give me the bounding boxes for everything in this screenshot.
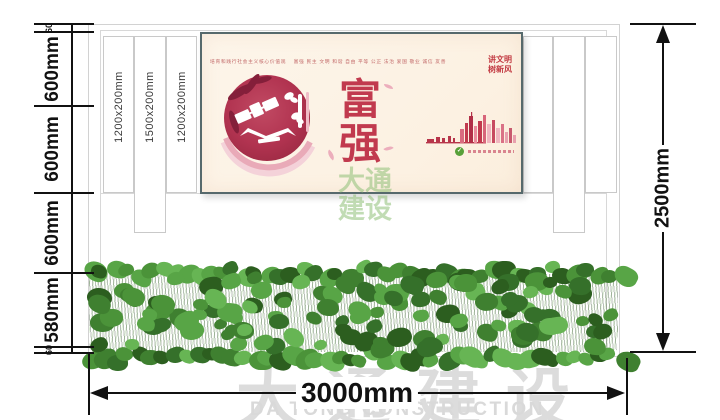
pillar-left-1-label: 1200x200mm (113, 71, 125, 143)
dim-right-line-lower (662, 232, 664, 348)
poster-slogan-line1: 讲文明 (488, 55, 512, 65)
dim-label-top-60: 60 (44, 23, 54, 33)
petal-decoration (383, 144, 393, 153)
pillar-left-2-label: 1500x200mm (144, 71, 156, 143)
pillar-left-3-label: 1200x200mm (176, 71, 188, 143)
dim-bottom-ext-right (626, 358, 628, 415)
arrow-right-icon (607, 386, 625, 400)
dim-right-line-upper (662, 28, 664, 145)
pillar-right-1 (523, 36, 553, 193)
watermark-center: 大通 建设 (338, 167, 392, 223)
pillar-right-2 (553, 36, 585, 233)
dim-label-600-2: 600mm (42, 116, 64, 182)
dim-bottom-ext-left (88, 353, 90, 415)
arrow-left-icon (90, 386, 108, 400)
poster-slogan-line2: 树新风 (488, 65, 512, 75)
watermark-center-line2: 建设 (338, 195, 392, 223)
papercut-circle-art (210, 66, 328, 188)
pillar-right-3 (585, 36, 617, 193)
dim-left-tick (34, 31, 94, 33)
poster-main-characters: 富 强 (338, 78, 382, 166)
dim-label-600-1: 600mm (42, 36, 64, 102)
poster-slogan: 讲文明 树新风 (488, 55, 512, 75)
arrow-down-icon (656, 333, 670, 351)
dim-label-width-total: 3000mm (296, 377, 418, 409)
dim-left-tick (34, 105, 94, 107)
dim-left-tick (34, 192, 94, 194)
dim-label-height-total: 2500mm (652, 148, 675, 228)
dim-left-line (71, 24, 73, 353)
petal-decoration (384, 84, 393, 89)
pillar-left-2: 1500x200mm (134, 36, 166, 233)
hedge (85, 266, 622, 362)
poster-core-values-caption: 培育和践行社会主义核心价值观 富强 民主 文明 和谐 自由 平等 公正 法治 爱… (210, 58, 446, 65)
wall-inner-line-top (100, 30, 607, 31)
dim-label-bottom-60: 60 (44, 345, 54, 355)
fine-print-caption (468, 150, 514, 153)
dim-label-580: 580mm (42, 277, 64, 343)
dim-left-tick (34, 272, 94, 274)
poster-char-bottom: 强 (338, 122, 382, 166)
pillar-left-1: 1200x200mm (103, 36, 134, 193)
dim-left-tick (34, 23, 94, 25)
dim-left-tick (34, 352, 94, 354)
signage-drawing: 大通建设 DA TONG CONSTRUCTION 1200x200mm 150… (0, 0, 720, 420)
dim-label-600-3: 600mm (42, 200, 64, 266)
dim-left-tick (34, 346, 94, 348)
watermark-center-line1: 大通 (338, 167, 392, 195)
pillar-left-3: 1200x200mm (166, 36, 197, 193)
arrow-up-icon (656, 25, 670, 43)
skyline-art (426, 112, 518, 148)
poster-logo-dot: ✓ (455, 147, 464, 156)
poster-char-top: 富 (338, 78, 382, 122)
dim-right-tick-bottom (630, 351, 696, 353)
